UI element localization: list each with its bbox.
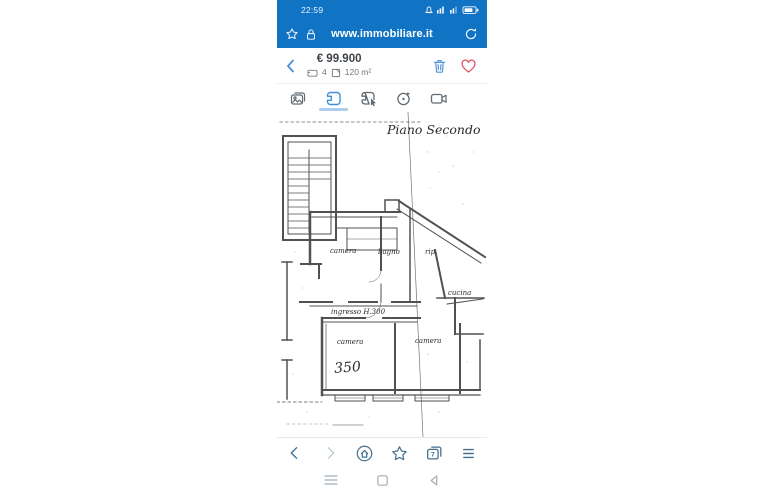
surface-icon (331, 68, 341, 78)
address-bar[interactable]: www.immobiliare.it (277, 20, 487, 48)
plan-label-hallway: ingresso H.300 (331, 308, 386, 316)
browser-forward-button[interactable] (318, 444, 342, 462)
tabs-icon: 7 (424, 443, 444, 463)
plan-label-room-bottom-left: camera (337, 338, 363, 346)
rooms-count: 4 (322, 68, 327, 78)
browser-menu-button[interactable] (457, 444, 481, 463)
floorplan-icon (324, 90, 343, 107)
mute-icon (426, 7, 432, 13)
plan-label-kitchen: cucina (448, 289, 471, 297)
tab-virtual-tour[interactable] (386, 84, 421, 112)
trash-button[interactable] (432, 58, 447, 74)
price-label: € 99.900 (317, 53, 362, 66)
plan-label-room-bottom-right: camera (415, 337, 441, 345)
listing-features: 4 120 m² (307, 68, 371, 78)
phone-screen: 22:59 (277, 0, 487, 492)
mobile-data-icon (450, 7, 457, 14)
tab-interactive-plan[interactable] (351, 84, 386, 112)
rooms-icon (307, 68, 318, 78)
clock: 22:59 (301, 5, 323, 15)
active-tab-underline (319, 108, 348, 111)
interactive-plan-icon (359, 90, 379, 107)
tab-count-badge: 7 (431, 452, 435, 459)
forward-chevron-icon (321, 444, 339, 462)
battery-icon (463, 7, 478, 14)
star-icon (390, 444, 409, 463)
back-button-icon[interactable] (426, 473, 441, 488)
favorite-heart-button[interactable] (460, 58, 477, 74)
plan-label-storage: rip. (425, 248, 437, 256)
browser-bookmarks-button[interactable] (387, 444, 411, 463)
tab-floorplan-active[interactable] (316, 84, 351, 112)
floorplan-drawing: Piano Secondo camera bagno rip. cucina i… (277, 112, 487, 437)
surface-value: 120 m² (345, 68, 371, 78)
video-icon (429, 90, 449, 107)
photos-icon (289, 90, 308, 107)
browser-tabs-button[interactable]: 7 (422, 443, 446, 463)
browser-home-button[interactable] (353, 444, 377, 463)
browser-back-button[interactable] (283, 444, 307, 462)
recents-button-icon[interactable] (323, 473, 339, 487)
browser-nav-bar: 7 (277, 437, 487, 468)
plan-label-room-top-left: camera (330, 247, 356, 255)
chevron-left-icon (285, 58, 295, 74)
listing-header: € 99.900 4 120 m² (277, 48, 487, 84)
home-icon (355, 444, 374, 463)
status-bar: 22:59 (277, 0, 487, 20)
lock-icon[interactable] (305, 28, 317, 41)
hamburger-menu-icon (459, 444, 478, 463)
url-text[interactable]: www.immobiliare.it (331, 28, 433, 40)
refresh-icon[interactable] (464, 27, 478, 41)
plan-label-room-number: 350 (334, 359, 362, 377)
tab-photos[interactable] (281, 84, 316, 112)
android-nav-bar (277, 468, 487, 492)
back-button[interactable] (285, 58, 295, 74)
signal-icon (437, 7, 444, 14)
plan-title: Piano Secondo (386, 122, 480, 137)
virtual-tour-icon (394, 90, 413, 107)
tab-video[interactable] (421, 84, 456, 112)
status-icons (423, 4, 481, 16)
home-button-icon[interactable] (375, 473, 390, 488)
bookmark-star-icon[interactable] (285, 27, 299, 41)
back-chevron-icon (286, 444, 304, 462)
floorplan-viewer[interactable]: Piano Secondo camera bagno rip. cucina i… (277, 112, 487, 437)
media-tabs (277, 84, 456, 112)
plan-label-bathroom: bagno (378, 248, 400, 256)
